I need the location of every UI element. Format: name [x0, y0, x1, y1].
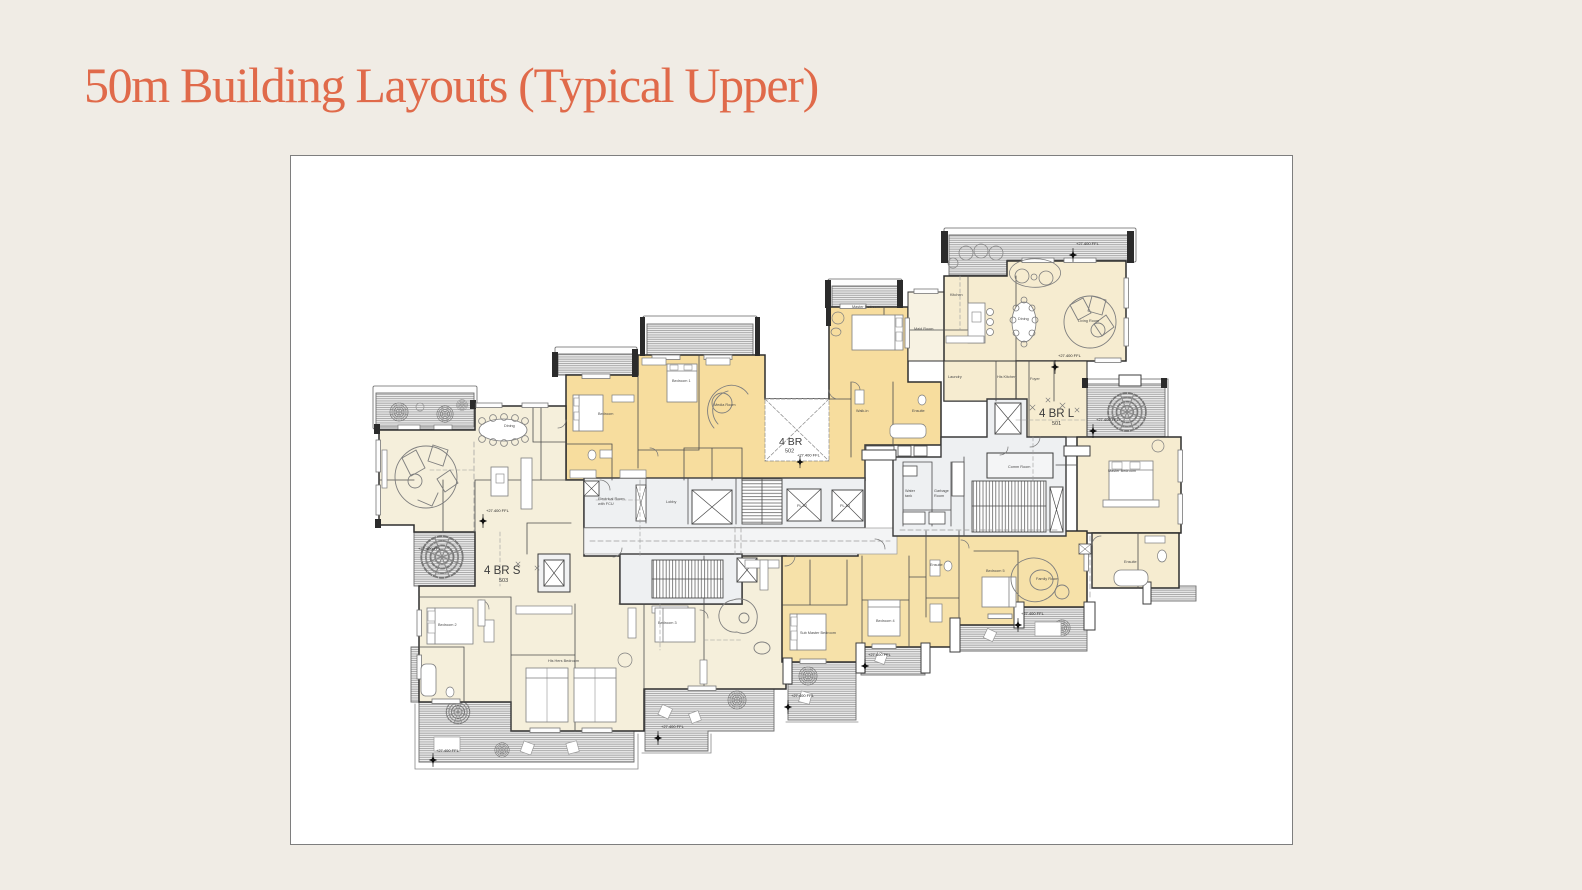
svg-text:+27.400 FFL: +27.400 FFL	[791, 693, 815, 698]
svg-text:Bedroom 1: Bedroom 1	[672, 379, 691, 383]
svg-text:Maid Room: Maid Room	[914, 327, 933, 331]
svg-text:His Hers Bedroom: His Hers Bedroom	[548, 659, 579, 663]
svg-text:Comm Room: Comm Room	[1008, 465, 1030, 469]
svg-text:Family Room: Family Room	[1036, 577, 1058, 581]
svg-text:with FCU: with FCU	[598, 502, 614, 506]
svg-text:+27.400 FFL: +27.400 FFL	[797, 453, 821, 458]
svg-text:Laundry: Laundry	[948, 375, 962, 379]
svg-text:Master Bedroom: Master Bedroom	[852, 305, 880, 309]
svg-text:PL-02: PL-02	[797, 504, 807, 508]
svg-text:Water: Water	[905, 489, 916, 493]
svg-text:+27.400 FFL: +27.400 FFL	[1096, 417, 1120, 422]
svg-text:Ensuite: Ensuite	[1124, 560, 1137, 564]
svg-text:Room: Room	[934, 494, 944, 498]
svg-text:Sub Master Bedroom: Sub Master Bedroom	[800, 631, 836, 635]
svg-text:502: 502	[785, 449, 794, 455]
svg-text:+27.400 FFL: +27.400 FFL	[661, 724, 685, 729]
svg-text:Garbage: Garbage	[934, 489, 949, 493]
svg-text:+27.400 FFL: +27.400 FFL	[1021, 611, 1045, 616]
svg-text:Dining: Dining	[1018, 317, 1029, 321]
svg-text:Foyer: Foyer	[1030, 377, 1040, 381]
svg-text:4 BR: 4 BR	[779, 436, 803, 448]
svg-text:Bedroom 4: Bedroom 4	[876, 619, 895, 623]
svg-text:Walk-in: Walk-in	[856, 409, 869, 413]
svg-text:Bedroom 3: Bedroom 3	[658, 621, 677, 625]
svg-text:501: 501	[1052, 421, 1061, 427]
svg-text:503: 503	[499, 578, 508, 584]
svg-text:Kitchen: Kitchen	[950, 293, 963, 297]
svg-text:4 BR S: 4 BR S	[484, 565, 521, 577]
svg-text:Lobby: Lobby	[666, 500, 676, 504]
svg-text:+27.400 FFL: +27.400 FFL	[418, 546, 442, 551]
svg-text:Ensuite: Ensuite	[912, 409, 925, 413]
svg-text:Electrical Room: Electrical Room	[598, 497, 625, 501]
svg-text:+27.400 FFL: +27.400 FFL	[436, 748, 460, 753]
svg-text:Living Room: Living Room	[1078, 319, 1099, 323]
svg-text:50m Building Layouts (Typical: 50m Building Layouts (Typical Upper)	[84, 57, 818, 113]
svg-text:Bedroom 2: Bedroom 2	[438, 623, 457, 627]
svg-text:Bedroom 5: Bedroom 5	[986, 569, 1005, 573]
svg-text:His Kitchen: His Kitchen	[997, 375, 1016, 379]
svg-text:+27.400 FFL: +27.400 FFL	[1076, 241, 1100, 246]
svg-text:+27.400 FFL: +27.400 FFL	[868, 652, 892, 657]
svg-text:tank: tank	[905, 494, 912, 498]
svg-text:4 BR L: 4 BR L	[1039, 408, 1075, 420]
svg-text:+27.400 FFL: +27.400 FFL	[486, 508, 510, 513]
svg-text:PL-03: PL-03	[840, 504, 850, 508]
svg-text:Master Bedroom: Master Bedroom	[1108, 469, 1136, 473]
svg-text:Media Room: Media Room	[714, 403, 736, 407]
svg-text:+27.400 FFL: +27.400 FFL	[1058, 353, 1082, 358]
svg-text:Dining: Dining	[504, 424, 515, 428]
svg-text:Ensuite: Ensuite	[930, 563, 943, 567]
svg-text:Bedroom: Bedroom	[598, 412, 613, 416]
